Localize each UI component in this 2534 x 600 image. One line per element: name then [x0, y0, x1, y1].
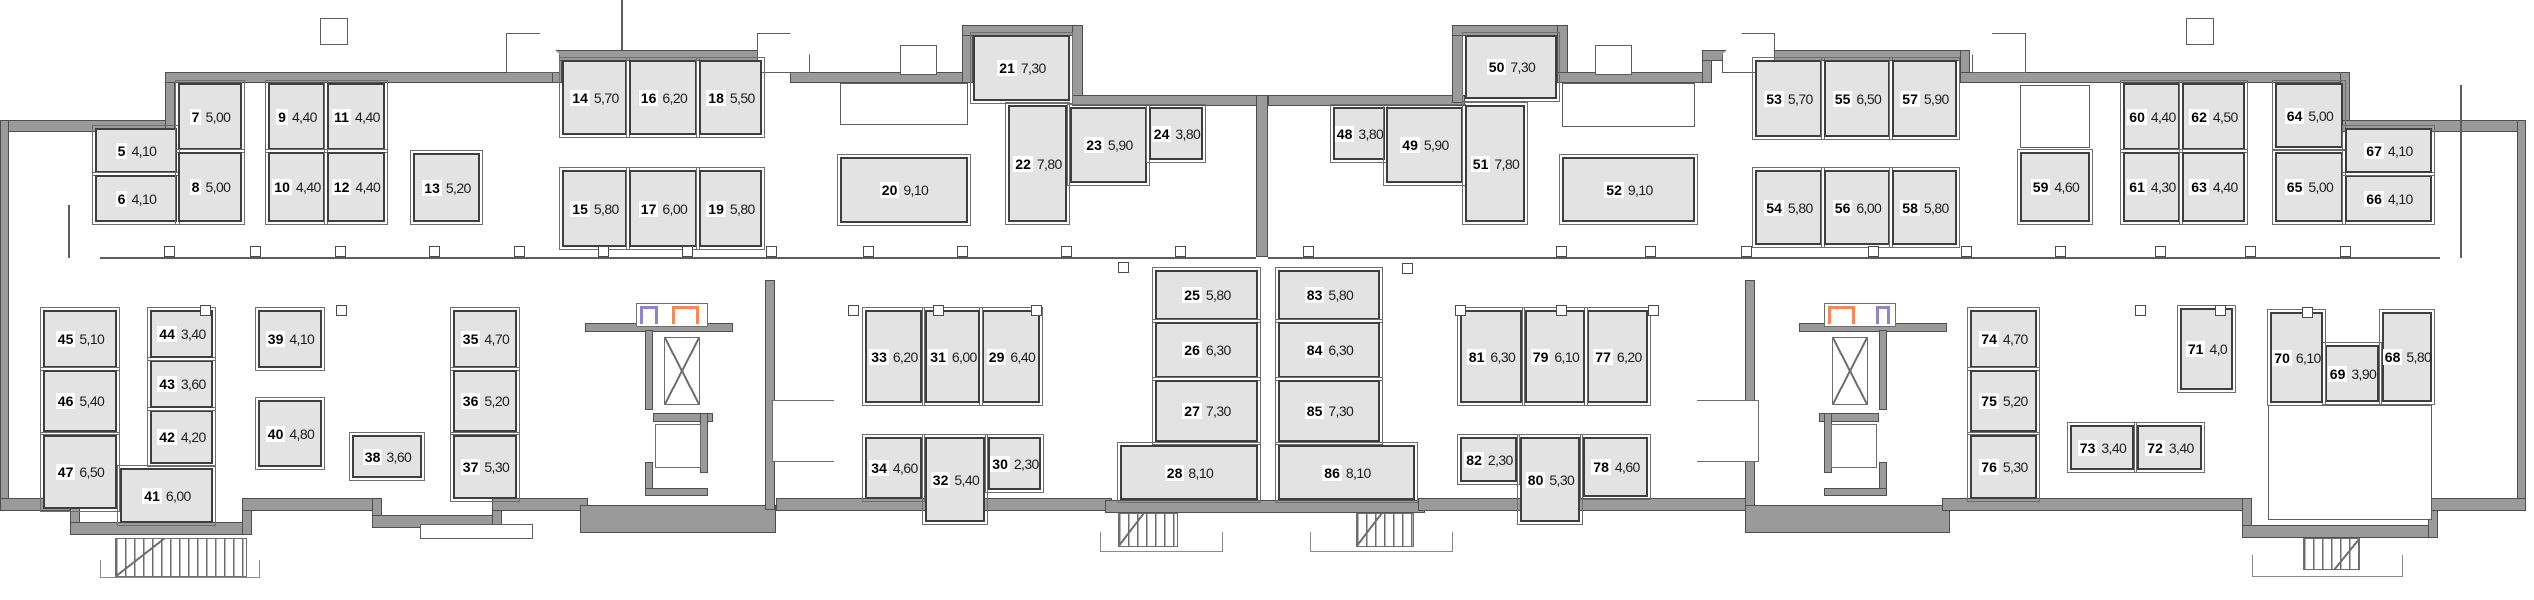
room-area: 4,40: [296, 179, 321, 195]
column-marker: [1868, 246, 1879, 257]
room-number: 52: [1604, 182, 1624, 198]
wall-segment: [0, 120, 9, 510]
column-marker: [957, 246, 968, 257]
wall-segment: [1942, 498, 2252, 511]
elevator-shaft-icon: [1832, 337, 1868, 405]
wall-segment: [2242, 525, 2438, 538]
room-area: 5,30: [484, 459, 509, 475]
column-marker: [200, 305, 211, 316]
tower-wall: [1452, 25, 1463, 103]
room-area: 4,10: [289, 331, 314, 347]
wall-segment: [1418, 498, 1528, 511]
room-42: 424,20: [150, 410, 213, 464]
wall-segment: [790, 72, 972, 83]
room-number: 14: [570, 90, 590, 106]
roof-vent: [2186, 18, 2214, 45]
stairs-direction: [115, 538, 165, 577]
room-area: 3,80: [1175, 126, 1200, 142]
room-number: 20: [880, 182, 900, 198]
column-marker: [1556, 305, 1567, 316]
room-area: 3,40: [2169, 440, 2194, 456]
stairs-direction: [1356, 513, 1382, 547]
room-20: 209,10: [840, 157, 968, 223]
column-marker: [1648, 305, 1659, 316]
room-area: 7,80: [1494, 156, 1519, 172]
balcony-outline: [506, 33, 560, 73]
room-number: 6: [116, 191, 128, 207]
bay-window-outline: [900, 45, 937, 75]
room-number: 35: [461, 331, 481, 347]
room-number: 7: [190, 109, 202, 125]
room-area: 5,00: [205, 109, 230, 125]
room-area: 3,40: [181, 326, 206, 342]
room-70: 706,10: [2270, 312, 2323, 403]
room-number: 22: [1013, 156, 1033, 172]
room-66: 664,10: [2345, 175, 2432, 222]
room-48: 483,80: [1333, 107, 1385, 160]
room-number: 31: [928, 349, 948, 365]
core-wall: [1824, 488, 1887, 496]
room-area: 5,50: [730, 90, 755, 106]
room-area: 3,40: [2101, 440, 2126, 456]
room-number: 5: [116, 143, 128, 159]
corridor-door-recess: [1697, 400, 1759, 462]
core-slab: [1745, 505, 1950, 533]
column-marker: [335, 246, 346, 257]
room-area: 4,70: [484, 331, 509, 347]
column-marker: [1118, 262, 1129, 273]
room-number: 71: [2186, 341, 2206, 357]
balcony-outline: [757, 33, 810, 73]
room-6: 64,10: [95, 175, 177, 222]
door-marker-orange-icon: [672, 306, 699, 324]
wall-segment: [1572, 498, 1752, 511]
room-54: 545,80: [1755, 170, 1822, 245]
room-number: 73: [2078, 440, 2098, 456]
room-number: 38: [363, 449, 383, 465]
column-marker: [863, 246, 874, 257]
room-area: 5,70: [1788, 91, 1813, 107]
room-63: 634,40: [2182, 152, 2245, 222]
room-85: 857,30: [1278, 380, 1380, 442]
room-31: 316,00: [925, 310, 980, 403]
room-area: 6,40: [1010, 349, 1035, 365]
room-27: 277,30: [1155, 380, 1258, 442]
room-area: 6,00: [952, 349, 977, 365]
room-49: 495,90: [1386, 107, 1463, 183]
room-51: 517,80: [1465, 105, 1525, 222]
room-number: 78: [1591, 459, 1611, 475]
room-80: 805,30: [1520, 437, 1580, 522]
corridor-line: [68, 205, 70, 258]
room-number: 62: [2189, 109, 2209, 125]
room-number: 55: [1833, 91, 1853, 107]
room-39: 394,10: [258, 310, 322, 368]
room-area: 6,20: [662, 90, 687, 106]
room-number: 70: [2272, 350, 2292, 366]
room-number: 68: [2383, 349, 2403, 365]
room-area: 2,30: [1014, 456, 1039, 472]
room-area: 4,50: [2213, 109, 2238, 125]
room-area: 6,30: [1490, 349, 1515, 365]
floor-plan: 54,1064,1075,0085,0094,40104,40114,40124…: [0, 0, 2534, 600]
room-number: 75: [1979, 393, 1999, 409]
room-area: 5,70: [594, 90, 619, 106]
room-84: 846,30: [1278, 322, 1380, 378]
room-number: 15: [570, 201, 590, 217]
room-24: 243,80: [1149, 107, 1203, 160]
room-area: 5,00: [2308, 108, 2333, 124]
room-52: 529,10: [1562, 157, 1695, 222]
room-area: 4,40: [355, 179, 380, 195]
room-area: 5,20: [446, 180, 471, 196]
room-40: 404,80: [258, 400, 322, 467]
room-28: 288,10: [1120, 445, 1258, 500]
stairs-direction: [1118, 513, 1144, 547]
room-area: 5,40: [79, 393, 104, 409]
room-81: 816,30: [1460, 310, 1522, 403]
room-12: 124,40: [327, 152, 385, 222]
room-43: 433,60: [150, 360, 213, 408]
core-wall: [1745, 280, 1755, 510]
wall-segment: [492, 498, 588, 511]
room-area: 6,00: [662, 201, 687, 217]
room-47: 476,50: [43, 435, 117, 509]
room-number: 72: [2145, 440, 2165, 456]
room-10: 104,40: [268, 152, 325, 222]
room-number: 74: [1979, 331, 1999, 347]
room-45: 455,10: [43, 310, 117, 368]
room-number: 34: [869, 460, 889, 476]
room-33: 336,20: [865, 310, 922, 403]
room-59: 594,60: [2020, 152, 2090, 222]
room-area: 5,00: [205, 179, 230, 195]
room-number: 53: [1764, 91, 1784, 107]
room-area: 4,40: [2151, 109, 2176, 125]
room-area: 4,60: [893, 460, 918, 476]
column-marker: [2155, 246, 2166, 257]
wall-segment: [1072, 95, 1268, 106]
room-area: 5,80: [730, 201, 755, 217]
room-77: 776,20: [1587, 310, 1648, 403]
column-marker: [682, 246, 693, 257]
room-number: 84: [1305, 342, 1325, 358]
corridor-line: [2460, 85, 2462, 258]
room-area: 5,90: [1424, 137, 1449, 153]
core-wall: [700, 413, 708, 473]
wall-segment: [2428, 498, 2526, 511]
column-marker: [1303, 246, 1314, 257]
room-22: 227,80: [1008, 105, 1067, 222]
column-marker: [429, 246, 440, 257]
room-26: 266,30: [1155, 322, 1258, 378]
room-area: 4,20: [181, 429, 206, 445]
room-area: 7,80: [1037, 156, 1062, 172]
corridor-line: [100, 257, 1256, 259]
room-13: 135,20: [413, 153, 480, 222]
wall-segment: [1105, 500, 1425, 513]
room-area: 4,40: [355, 109, 380, 125]
column-marker: [1061, 246, 1072, 257]
room-62: 624,50: [2182, 83, 2245, 150]
room-35: 354,70: [453, 310, 517, 368]
room-number: 21: [997, 60, 1017, 76]
room-50: 507,30: [1465, 35, 1557, 99]
core-wall: [645, 488, 708, 496]
room-number: 66: [2364, 191, 2384, 207]
room-number: 81: [1467, 349, 1487, 365]
room-64: 645,00: [2275, 83, 2343, 148]
room-76: 765,30: [1970, 435, 2037, 499]
shaft-box: [655, 424, 701, 468]
column-marker: [250, 246, 261, 257]
room-area: 5,90: [1108, 137, 1133, 153]
column-marker: [1961, 246, 1972, 257]
wall-segment: [2517, 120, 2526, 510]
room-area: 6,30: [1328, 342, 1353, 358]
room-number: 8: [190, 179, 202, 195]
room-area: 7,30: [1206, 403, 1231, 419]
corridor-door-recess: [772, 400, 834, 462]
room-area: 5,20: [2003, 393, 2028, 409]
column-marker: [1031, 305, 1042, 316]
room-16: 166,20: [629, 60, 697, 135]
column-marker: [1455, 305, 1466, 316]
room-number: 80: [1526, 472, 1546, 488]
column-marker: [598, 246, 609, 257]
room-number: 79: [1531, 349, 1551, 365]
anteroom-outline: [2020, 85, 2090, 148]
room-area: 7,30: [1510, 59, 1535, 75]
column-marker: [514, 246, 525, 257]
room-number: 18: [706, 90, 726, 106]
room-19: 195,80: [699, 170, 762, 247]
room-number: 82: [1464, 452, 1484, 468]
room-30: 302,30: [988, 437, 1041, 490]
room-area: 6,10: [2296, 350, 2321, 366]
room-area: 3,90: [2351, 366, 2376, 382]
room-25: 255,80: [1155, 270, 1258, 320]
room-area: 6,20: [893, 349, 918, 365]
column-marker: [164, 246, 175, 257]
room-area: 4,30: [2151, 179, 2176, 195]
room-56: 566,00: [1824, 170, 1890, 245]
room-number: 26: [1182, 342, 1202, 358]
core-slab: [580, 505, 776, 533]
room-number: 63: [2189, 179, 2209, 195]
section-line: [621, 0, 623, 50]
room-5: 54,10: [95, 128, 177, 173]
room-86: 868,10: [1278, 445, 1415, 500]
room-68: 685,80: [2382, 312, 2432, 402]
open-room: [2268, 405, 2432, 520]
elevator-shaft-icon: [664, 337, 700, 405]
room-area: 5,80: [594, 201, 619, 217]
room-38: 383,60: [352, 435, 422, 478]
room-29: 296,40: [982, 310, 1040, 403]
room-area: 7,30: [1328, 403, 1353, 419]
room-23: 235,90: [1070, 107, 1147, 183]
room-number: 49: [1400, 137, 1420, 153]
room-number: 57: [1900, 91, 1920, 107]
room-number: 40: [266, 426, 286, 442]
room-60: 604,40: [2123, 83, 2180, 150]
room-number: 10: [272, 179, 292, 195]
column-marker: [1175, 246, 1186, 257]
room-82: 822,30: [1460, 437, 1517, 482]
room-area: 4,10: [131, 143, 156, 159]
room-area: 3,60: [386, 449, 411, 465]
core-wall: [645, 330, 653, 410]
room-area: 5,40: [954, 472, 979, 488]
room-area: 7,30: [1021, 60, 1046, 76]
room-74: 744,70: [1970, 310, 2037, 368]
room-number: 39: [266, 331, 286, 347]
room-15: 155,80: [562, 170, 627, 247]
room-21: 217,30: [973, 35, 1070, 101]
room-36: 365,20: [453, 370, 517, 432]
center-party-wall: [1256, 95, 1268, 257]
room-number: 65: [2285, 179, 2305, 195]
room-34: 344,60: [865, 437, 922, 499]
room-number: 69: [2328, 366, 2348, 382]
room-number: 43: [157, 376, 177, 392]
roof-vent: [320, 18, 348, 45]
column-marker: [1645, 246, 1656, 257]
room-number: 51: [1471, 156, 1491, 172]
room-number: 24: [1152, 126, 1172, 142]
room-53: 535,70: [1755, 60, 1822, 137]
column-marker: [2340, 246, 2351, 257]
room-area: 5,30: [2003, 459, 2028, 475]
room-number: 64: [2285, 108, 2305, 124]
room-area: 6,00: [1856, 200, 1881, 216]
room-9: 94,40: [268, 83, 325, 150]
room-area: 5,80: [1206, 287, 1231, 303]
room-8: 85,00: [178, 152, 242, 222]
room-number: 19: [706, 201, 726, 217]
room-number: 50: [1487, 59, 1507, 75]
anteroom-outline: [1562, 83, 1695, 127]
room-area: 3,80: [1358, 126, 1383, 142]
column-marker: [2055, 246, 2066, 257]
room-37: 375,30: [453, 435, 517, 499]
room-number: 83: [1305, 287, 1325, 303]
room-number: 45: [56, 331, 76, 347]
column-marker: [933, 305, 944, 316]
room-number: 59: [2031, 179, 2051, 195]
room-number: 30: [990, 456, 1010, 472]
room-65: 655,00: [2275, 152, 2343, 222]
room-number: 47: [56, 464, 76, 480]
room-73: 733,40: [2070, 425, 2134, 470]
room-11: 114,40: [327, 83, 385, 150]
room-area: 4,0: [2209, 341, 2227, 357]
room-71: 714,0: [2180, 308, 2233, 390]
room-number: 33: [869, 349, 889, 365]
room-area: 2,30: [1488, 452, 1513, 468]
room-58: 585,80: [1892, 170, 1957, 245]
room-area: 4,60: [2054, 179, 2079, 195]
room-57: 575,90: [1892, 60, 1957, 137]
room-78: 784,60: [1583, 437, 1648, 497]
room-number: 9: [276, 109, 288, 125]
room-44: 443,40: [150, 310, 213, 358]
room-number: 76: [1979, 459, 1999, 475]
room-area: 6,50: [1856, 91, 1881, 107]
room-area: 3,60: [181, 376, 206, 392]
room-72: 723,40: [2137, 425, 2202, 470]
room-area: 4,60: [1615, 459, 1640, 475]
wall-segment: [1557, 72, 1712, 83]
door-marker-purple-icon: [640, 306, 658, 324]
room-area: 4,10: [2388, 143, 2413, 159]
wall-segment: [165, 72, 560, 83]
column-marker: [766, 246, 777, 257]
room-area: 6,30: [1206, 342, 1231, 358]
room-61: 614,30: [2123, 152, 2180, 222]
anteroom-outline: [840, 83, 968, 125]
room-79: 796,10: [1525, 310, 1585, 403]
shaft-box: [1831, 424, 1877, 468]
room-46: 465,40: [43, 370, 117, 432]
room-number: 29: [987, 349, 1007, 365]
room-area: 4,10: [131, 191, 156, 207]
room-number: 86: [1322, 465, 1342, 481]
room-area: 6,20: [1617, 349, 1642, 365]
room-83: 835,80: [1278, 270, 1380, 320]
entry-walkway: [420, 524, 533, 539]
room-14: 145,70: [562, 60, 627, 135]
room-number: 42: [157, 429, 177, 445]
room-17: 176,00: [629, 170, 697, 247]
room-area: 5,20: [484, 393, 509, 409]
room-area: 6,00: [166, 488, 191, 504]
room-area: 4,40: [2213, 179, 2238, 195]
core-wall: [1879, 330, 1887, 410]
room-area: 5,80: [2406, 349, 2431, 365]
room-number: 16: [639, 90, 659, 106]
room-area: 5,80: [1924, 200, 1949, 216]
room-number: 48: [1335, 126, 1355, 142]
room-area: 6,10: [1554, 349, 1579, 365]
wall-segment: [242, 498, 382, 511]
room-number: 27: [1182, 403, 1202, 419]
room-number: 23: [1084, 137, 1104, 153]
room-number: 67: [2364, 143, 2384, 159]
room-67: 674,10: [2345, 128, 2432, 173]
room-number: 32: [931, 472, 951, 488]
room-18: 185,50: [699, 60, 762, 135]
column-marker: [2215, 305, 2226, 316]
room-number: 60: [2127, 109, 2147, 125]
room-number: 41: [142, 488, 162, 504]
room-area: 5,90: [1924, 91, 1949, 107]
room-area: 6,50: [79, 464, 104, 480]
room-number: 85: [1305, 403, 1325, 419]
room-number: 11: [332, 109, 351, 125]
column-marker: [2302, 307, 2313, 318]
room-area: 8,10: [1188, 465, 1213, 481]
room-area: 5,00: [2308, 179, 2333, 195]
core-wall: [765, 280, 775, 510]
room-number: 58: [1900, 200, 1920, 216]
column-marker: [2135, 305, 2146, 316]
room-75: 755,20: [1970, 370, 2037, 432]
room-number: 36: [461, 393, 481, 409]
room-number: 54: [1764, 200, 1784, 216]
column-marker: [1741, 246, 1752, 257]
